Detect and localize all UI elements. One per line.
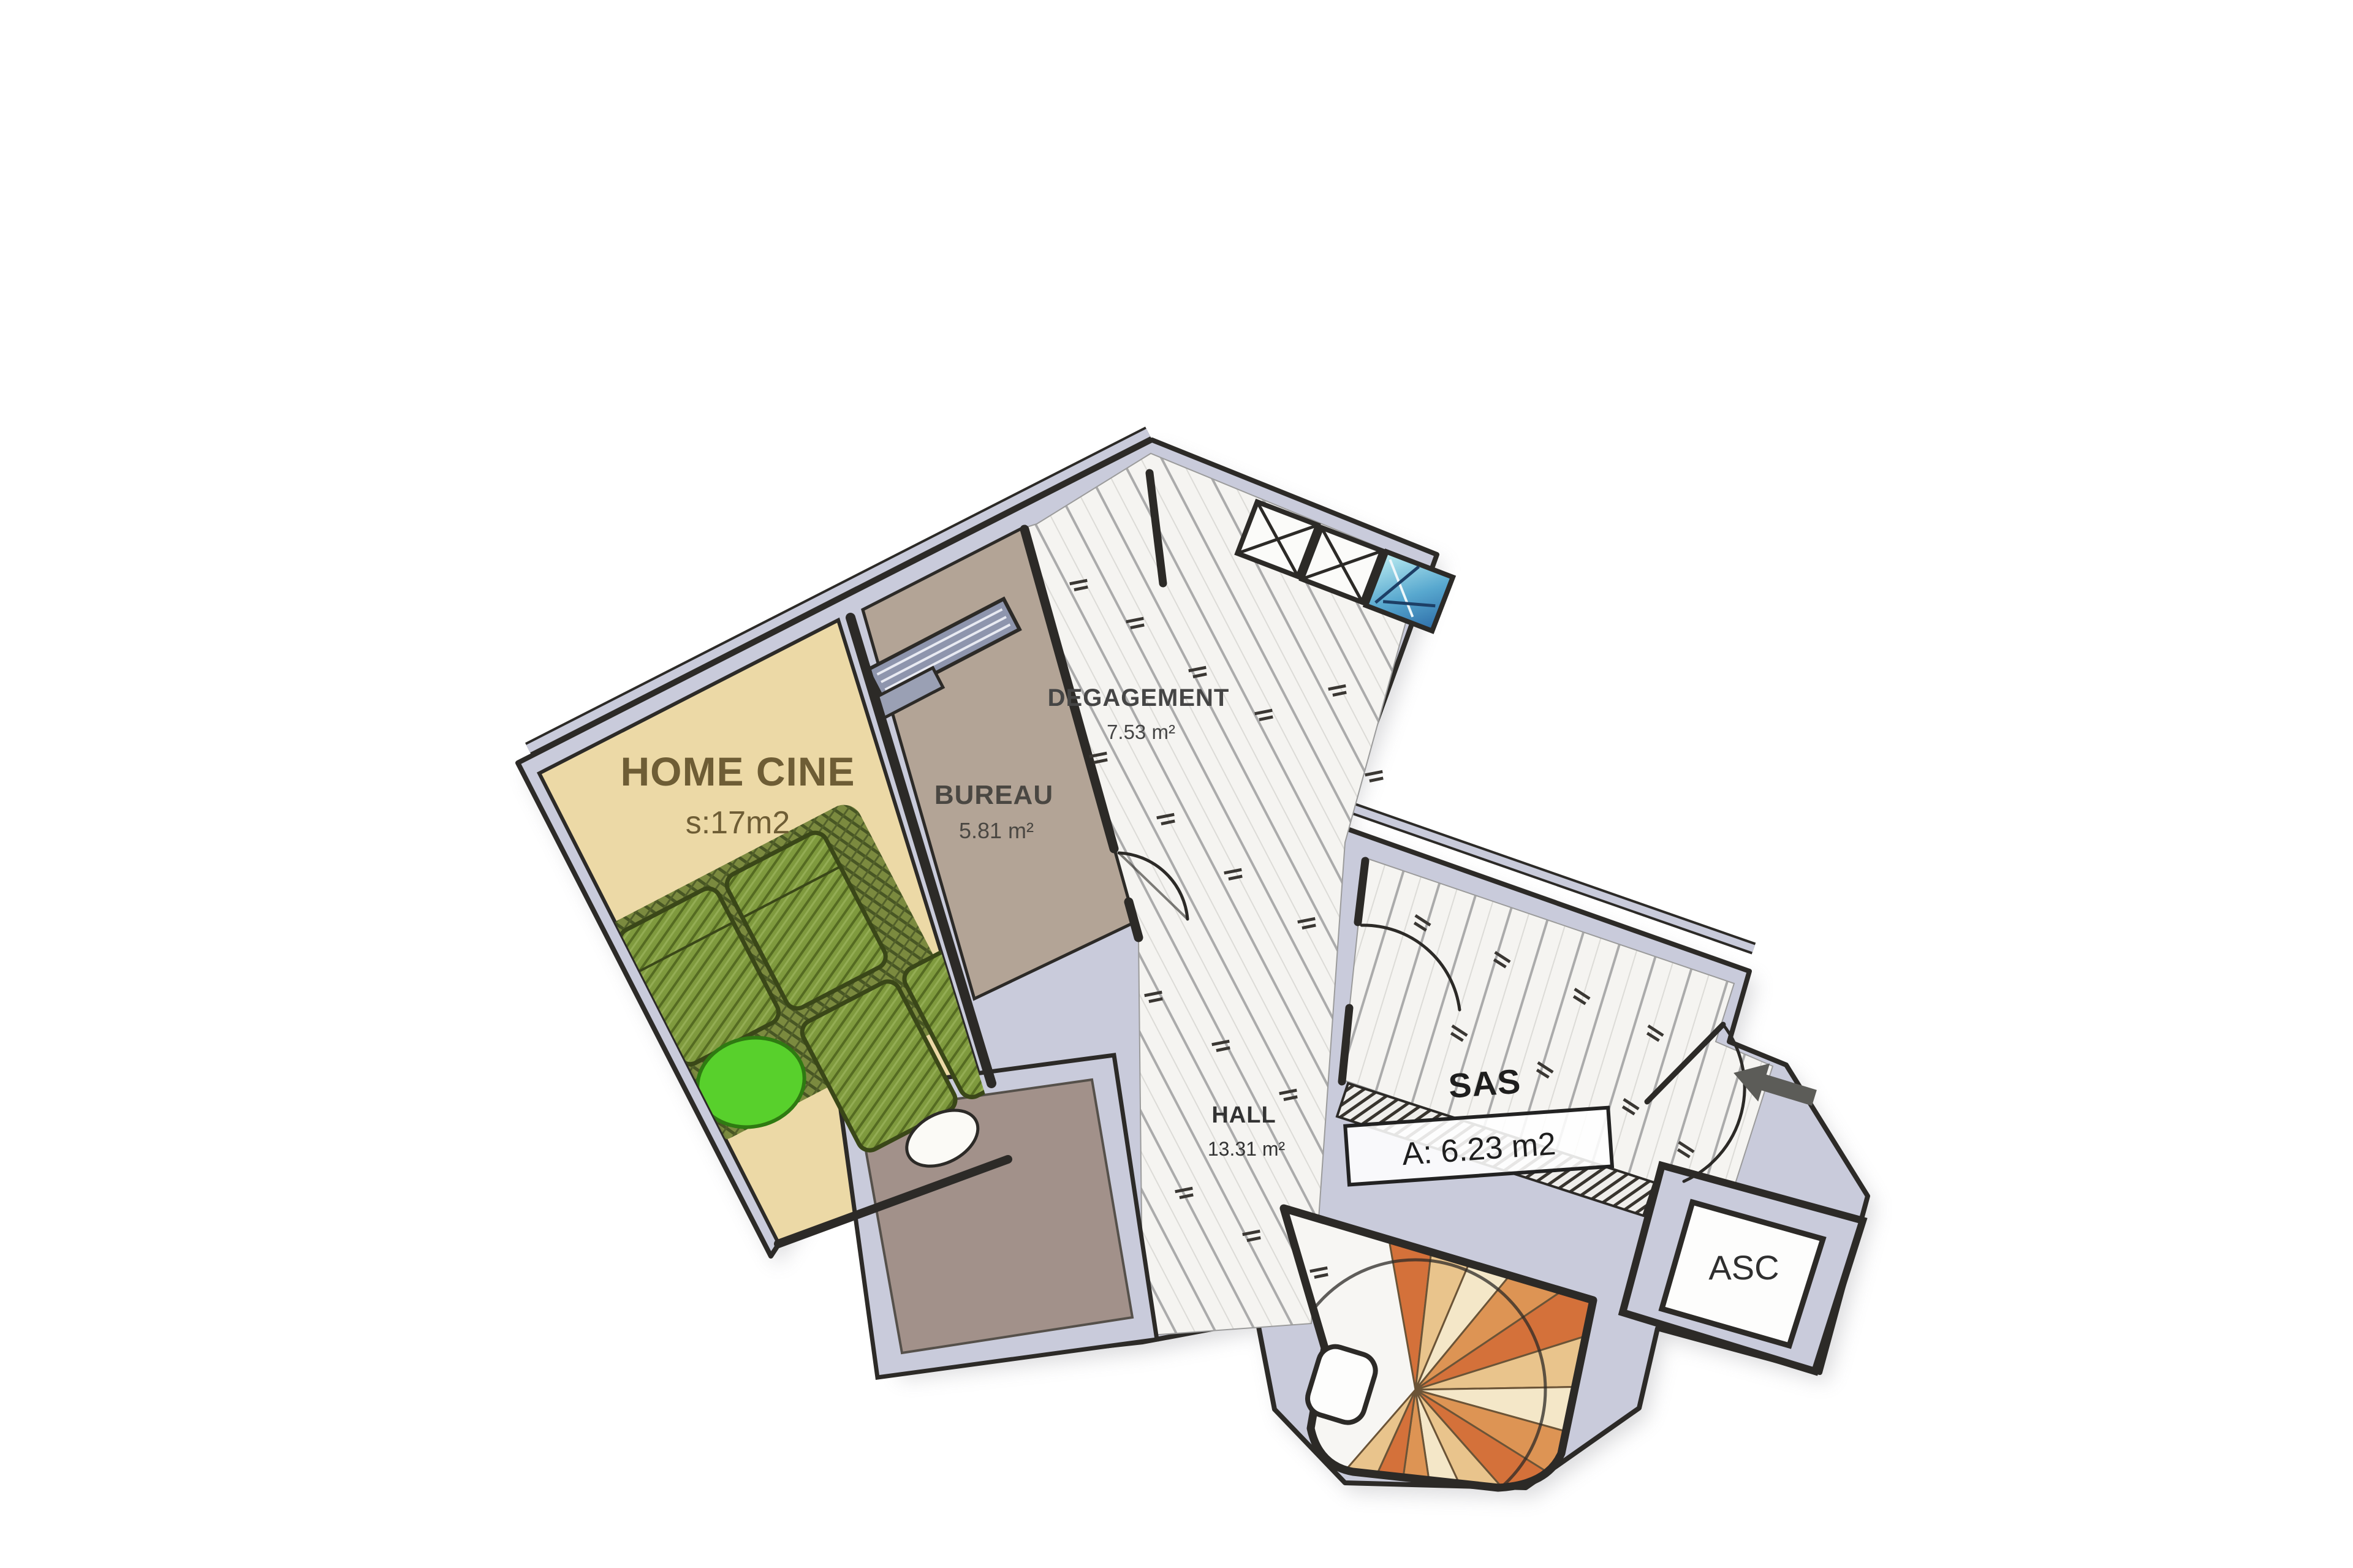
label-hall-area: 13.31 m²: [1208, 1138, 1286, 1160]
label-bureau: BUREAU: [934, 780, 1053, 810]
label-bureau-area: 5.81 m²: [959, 818, 1034, 843]
label-degagement-area: 7.53 m²: [1107, 721, 1175, 743]
label-sas: SAS: [1447, 1062, 1522, 1105]
label-home-cine-area: s:17m2: [686, 805, 790, 841]
label-degagement: DEGAGEMENT: [1048, 684, 1230, 711]
floor-plan-canvas: HOME CINE s:17m2 BUREAU 5.81 m² DEGAGEME…: [0, 0, 2353, 1568]
label-home-cine: HOME CINE: [620, 749, 855, 794]
label-asc: ASC: [1708, 1248, 1779, 1287]
label-hall: HALL: [1211, 1102, 1276, 1128]
